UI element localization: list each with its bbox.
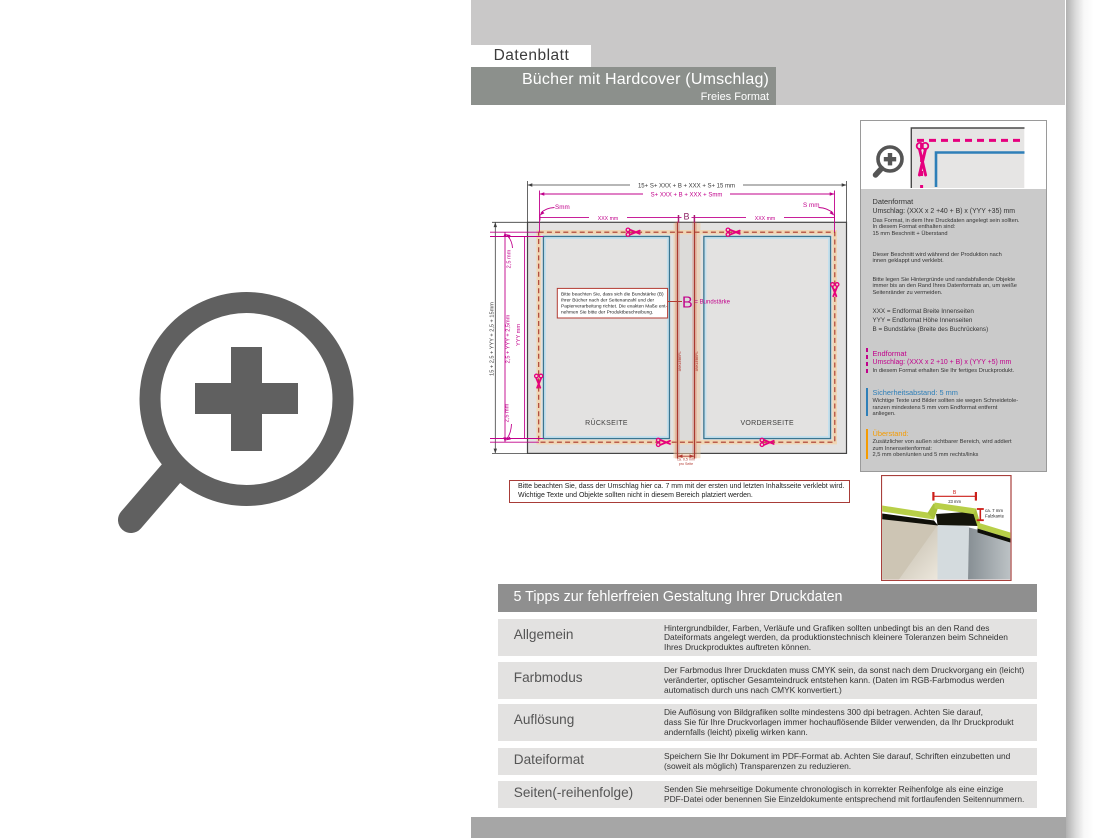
svg-text:23 mm: 23 mm — [948, 499, 961, 504]
svg-text:Bitte beachten Sie, dass sich: Bitte beachten Sie, dass sich die Bundst… — [561, 291, 664, 297]
svg-text:RÜCKSEITE: RÜCKSEITE — [585, 419, 628, 427]
svg-text:2,5 mm: 2,5 mm — [505, 403, 511, 422]
svg-text:S mm: S mm — [803, 202, 819, 209]
svg-text:ca. 7 mm: ca. 7 mm — [985, 508, 1003, 513]
svg-text:S+ XXX + B + XXX + Smm: S+ XXX + B + XXX + Smm — [651, 193, 723, 199]
svg-text:Smm: Smm — [555, 204, 570, 211]
svg-text:Falzkante: Falzkante — [985, 514, 1005, 519]
svg-text:Ihrer Bücher nach der Seitenan: Ihrer Bücher nach der Seitenanzahl und d… — [561, 297, 654, 303]
svg-text:XXX mm: XXX mm — [598, 216, 618, 222]
svg-text:XXX mm: XXX mm — [755, 216, 775, 222]
svg-text:ANKLEBEFL.: ANKLEBEFL. — [695, 351, 699, 372]
svg-text:ca. 0,5 mm: ca. 0,5 mm — [677, 458, 695, 462]
svg-text:2,5 + YYY + 2,5mm: 2,5 + YYY + 2,5mm — [506, 314, 512, 363]
svg-text:15+ S+ XXX + B + XXX + S+ 15 m: 15+ S+ XXX + B + XXX + S+ 15 mm — [638, 184, 735, 190]
svg-text:nehmen Sie bitte der Produktbe: nehmen Sie bitte der Produktbeschreibung… — [561, 309, 653, 315]
svg-text:= Bundstärke: = Bundstärke — [695, 299, 731, 305]
svg-text:15 + 2,5 + YYY + 2,5 + 15mm: 15 + 2,5 + YYY + 2,5 + 15mm — [490, 302, 496, 376]
svg-text:VORDERSEITE: VORDERSEITE — [740, 420, 794, 427]
svg-text:ANKLEBEFL.: ANKLEBEFL. — [678, 351, 682, 372]
svg-text:pro Seite: pro Seite — [679, 462, 693, 466]
svg-text:2,5 mm: 2,5 mm — [507, 249, 513, 268]
svg-text:Papierverarbeitung richtet. Di: Papierverarbeitung richtet. Die exakten … — [561, 303, 668, 309]
svg-text:YYY mm: YYY mm — [516, 324, 522, 346]
svg-text:B: B — [683, 212, 689, 222]
svg-text:B: B — [953, 490, 957, 496]
svg-text:B: B — [682, 295, 693, 312]
